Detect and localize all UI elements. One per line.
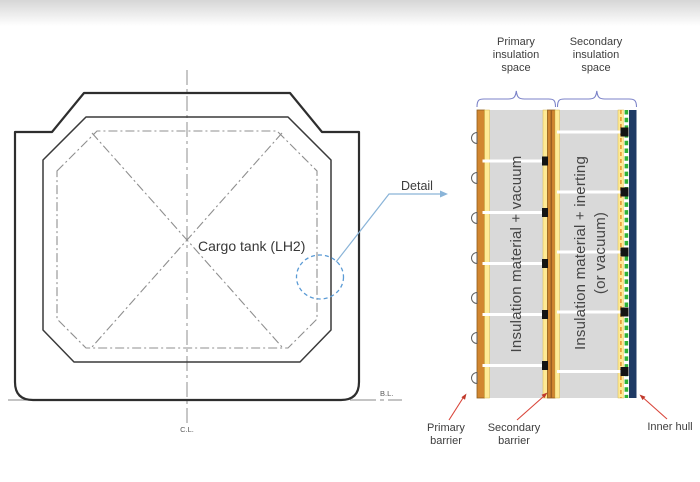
hull-cross-section: Cargo tank (LH2) C.L. B.L. Detail <box>8 70 448 434</box>
support-anchor <box>621 367 629 376</box>
detail-leader-line <box>336 194 440 262</box>
detail-label: Detail <box>401 179 433 193</box>
corrugation-bump <box>472 213 478 224</box>
primary-barrier-yellow-layer <box>485 110 490 398</box>
primary-barrier-label-line: barrier <box>430 435 462 447</box>
corrugation-bump <box>472 253 478 264</box>
support-line <box>557 251 623 254</box>
primary-barrier-corrugations <box>472 133 478 384</box>
primary-space-label-line: insulation <box>493 49 539 61</box>
primary-space-label-line: space <box>501 62 530 74</box>
baseline-label: B.L. <box>380 389 393 398</box>
secondary-barrier-yellow-right <box>555 110 560 398</box>
support-anchor <box>621 188 629 197</box>
inner-hull-label: Inner hull <box>647 421 692 433</box>
support-anchor <box>621 308 629 317</box>
secondary-space-text-line2: (or vacuum) <box>592 212 609 294</box>
callout-line <box>517 397 544 421</box>
insulation-detail: Insulation material + vacuum Insulation … <box>427 36 693 447</box>
primary-barrier-layer <box>477 110 485 398</box>
secondary-space-label: Secondary insulation space <box>570 36 623 74</box>
support-anchor <box>621 248 629 257</box>
cargo-tank-label: Cargo tank (LH2) <box>198 238 305 254</box>
inner-hull-callout: Inner hull <box>640 395 693 434</box>
corrugation-bump <box>472 133 478 144</box>
support-anchor <box>542 361 548 370</box>
support-line <box>557 131 623 134</box>
corrugation-bump <box>472 373 478 384</box>
support-anchor <box>542 259 548 268</box>
primary-space-label: Primary insulation space <box>493 36 539 74</box>
secondary-barrier-yellow-left <box>543 110 548 398</box>
primary-space-brace <box>477 91 556 107</box>
corrugation-bump <box>472 333 478 344</box>
support-anchor <box>542 208 548 217</box>
primary-barrier-label-line: Primary <box>427 422 465 434</box>
support-anchor <box>542 157 548 166</box>
secondary-space-text-line1: Insulation material + inerting <box>572 156 589 350</box>
lh2-carrier-diagram: Cargo tank (LH2) C.L. B.L. Detail <box>0 0 700 482</box>
secondary-barrier-label-line: Secondary <box>488 422 541 434</box>
support-line <box>483 364 544 367</box>
primary-space-text: Insulation material + vacuum <box>508 156 525 353</box>
support-line <box>557 370 623 373</box>
centerline-label: C.L. <box>180 425 194 434</box>
secondary-barrier-label-line: barrier <box>498 435 530 447</box>
callout-line <box>449 398 463 420</box>
inner-hull-bar <box>629 110 637 398</box>
diagram-canvas: Cargo tank (LH2) C.L. B.L. Detail <box>0 0 700 482</box>
secondary-space-label-line: Secondary <box>570 36 623 48</box>
support-anchor <box>621 128 629 137</box>
secondary-space-brace <box>558 91 637 107</box>
secondary-barrier-callout: Secondary barrier <box>488 393 548 448</box>
secondary-space-label-line: insulation <box>573 49 619 61</box>
corrugation-bump <box>472 293 478 304</box>
primary-space-label-line: Primary <box>497 36 535 48</box>
corrugation-bump <box>472 173 477 184</box>
primary-barrier-callout: Primary barrier <box>427 394 466 448</box>
support-line <box>557 311 623 314</box>
support-anchor <box>542 310 548 319</box>
secondary-space-label-line: space <box>581 62 610 74</box>
callout-line <box>644 399 667 420</box>
detail-leader-arrowhead <box>440 191 448 198</box>
support-line <box>557 191 623 194</box>
